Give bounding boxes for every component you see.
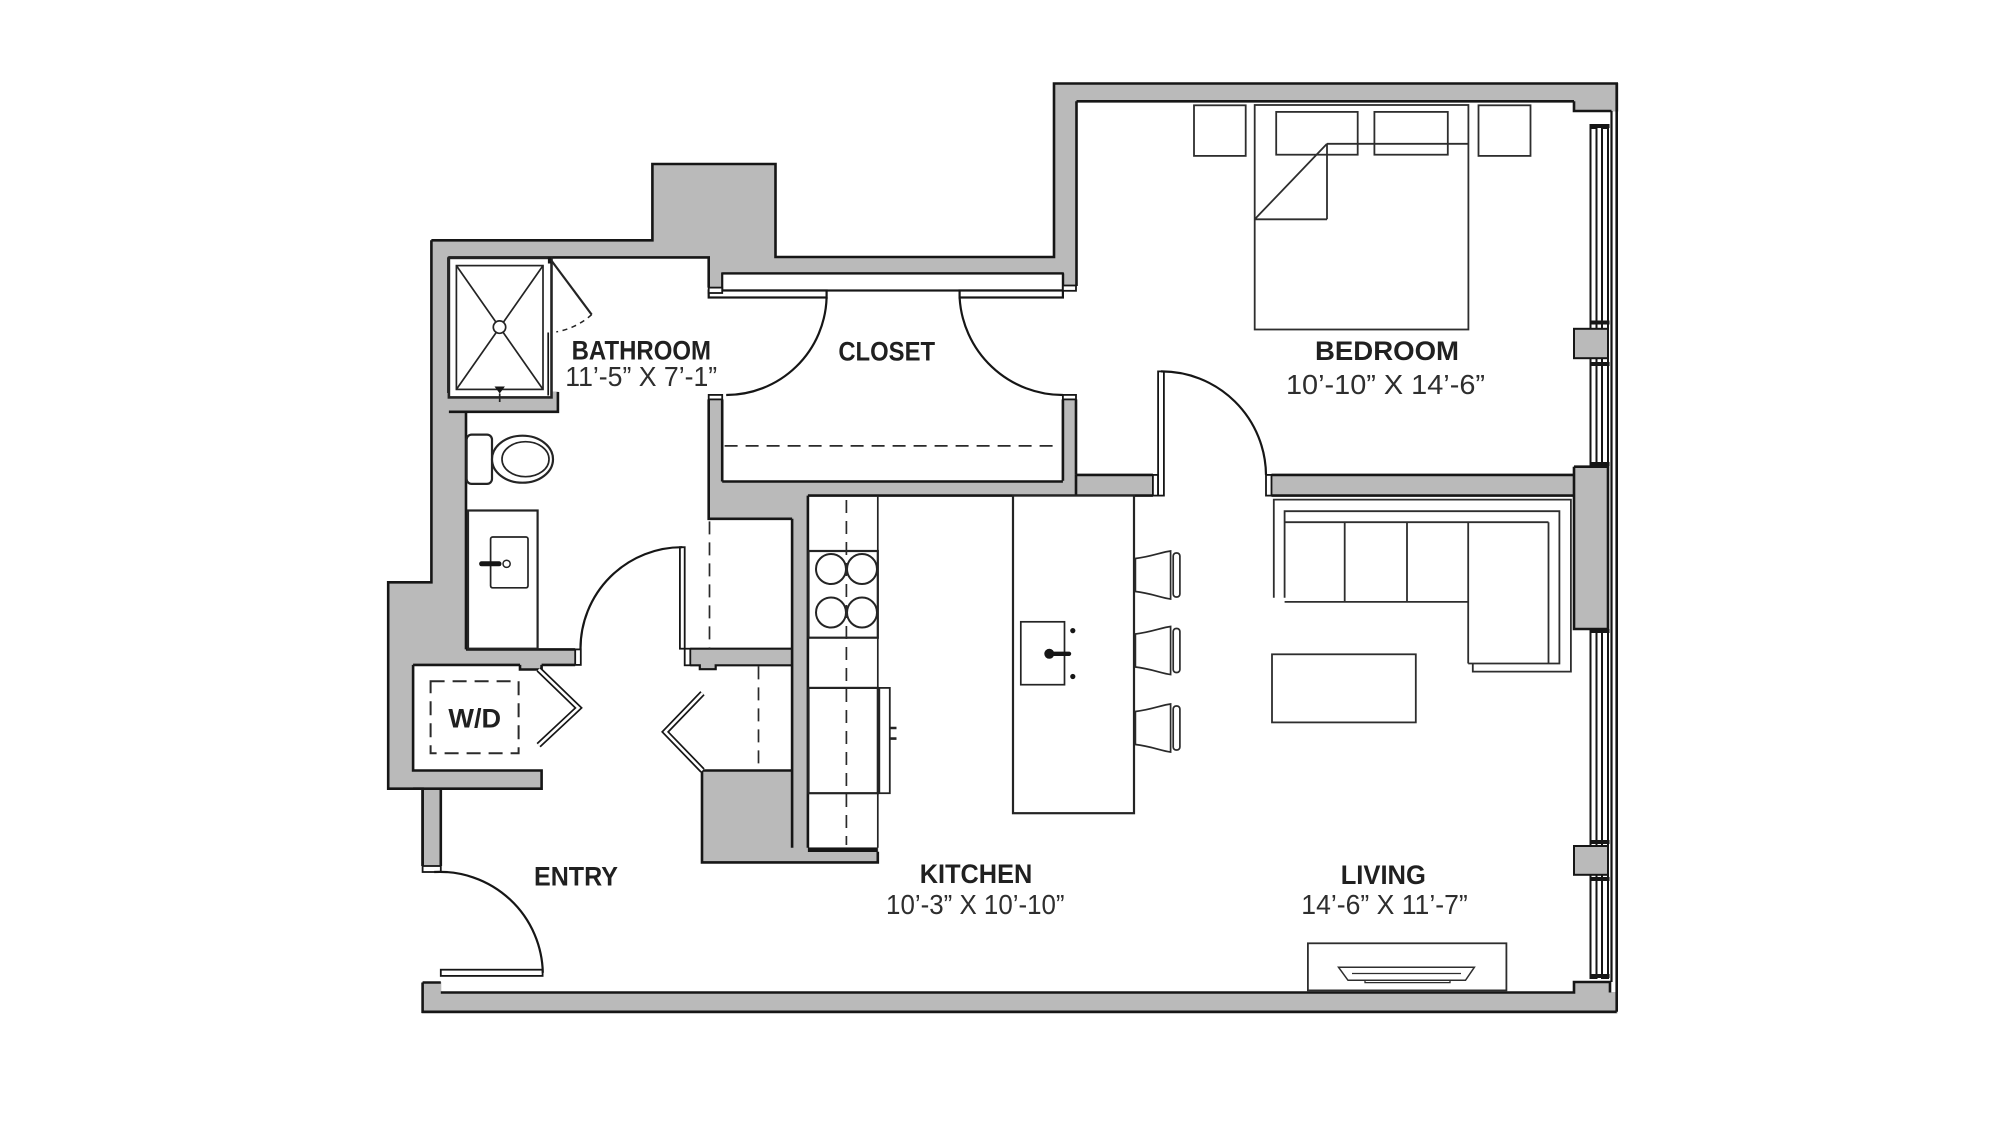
- svg-text:11’-5” X 7’-1”: 11’-5” X 7’-1”: [565, 361, 717, 392]
- svg-text:BEDROOM: BEDROOM: [1315, 336, 1459, 366]
- svg-text:CLOSET: CLOSET: [838, 337, 935, 367]
- svg-text:10’-10” X 14’-6”: 10’-10” X 14’-6”: [1286, 369, 1485, 400]
- svg-text:LIVING: LIVING: [1341, 860, 1426, 890]
- svg-text:14’-6” X 11’-7”: 14’-6” X 11’-7”: [1301, 889, 1467, 920]
- svg-text:KITCHEN: KITCHEN: [920, 859, 1033, 889]
- svg-text:10’-3” X 10’-10”: 10’-3” X 10’-10”: [886, 889, 1065, 920]
- svg-text:W/D: W/D: [448, 703, 501, 733]
- svg-text:ENTRY: ENTRY: [534, 861, 618, 891]
